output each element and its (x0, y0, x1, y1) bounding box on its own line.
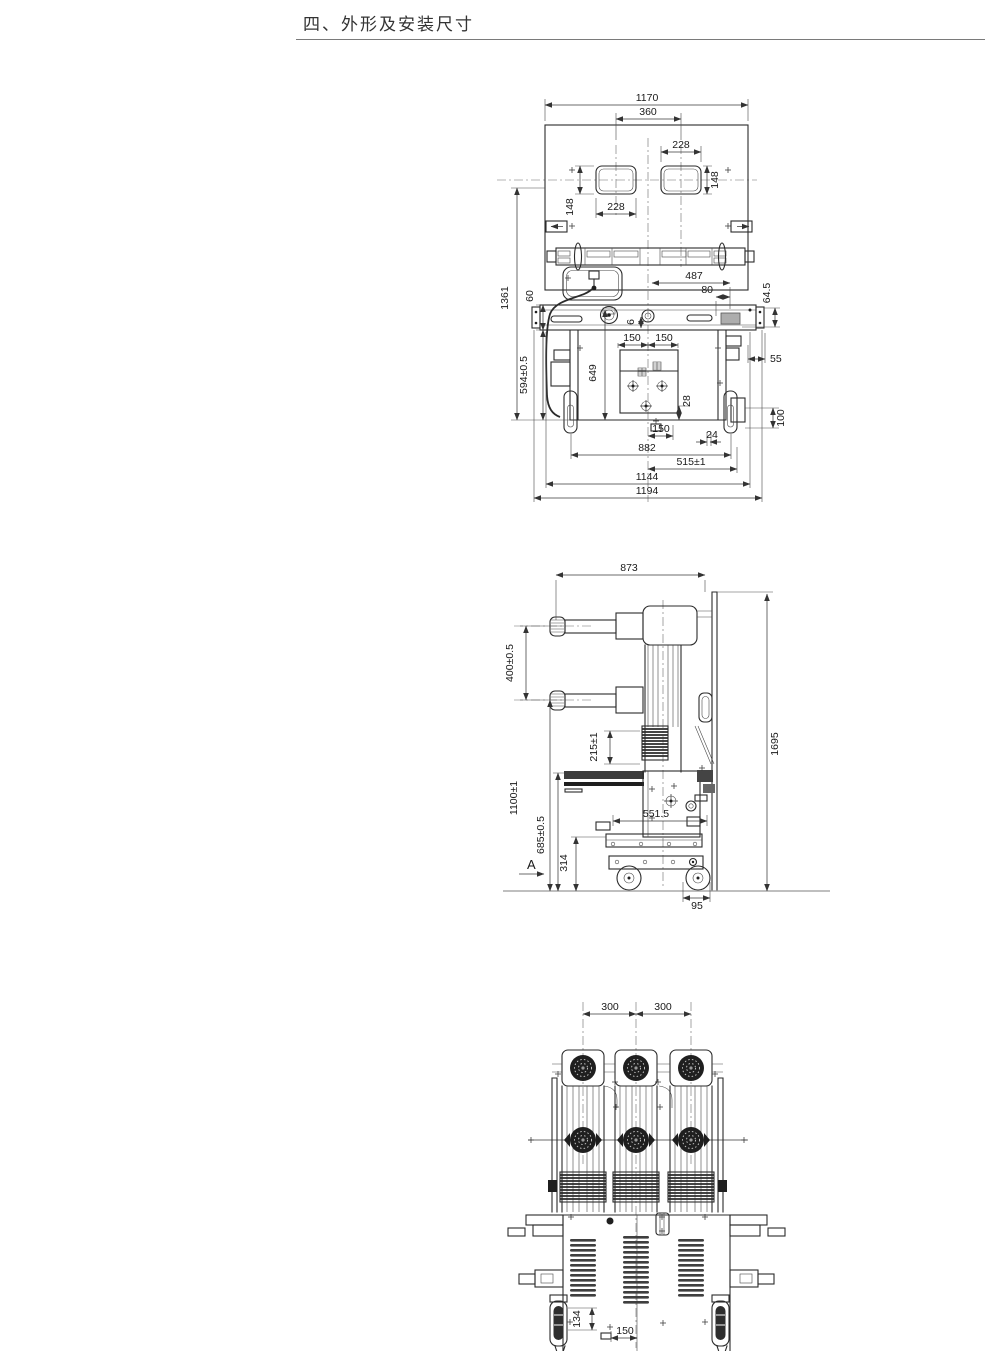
dim-label-873: 873 (620, 562, 638, 574)
side-truck (503, 834, 830, 891)
dim-label-6: 6 (625, 319, 637, 325)
dim-label-80: 80 (701, 284, 713, 296)
dim-label-1144: 1144 (636, 471, 659, 483)
side-carriage (564, 765, 715, 837)
dim-label-148-right: 148 (709, 171, 721, 189)
dim-label-134: 134 (571, 1310, 583, 1328)
dim-label-64_5: 64.5 (761, 283, 773, 304)
section-label-A: A (527, 857, 536, 872)
front-plan-dimensions: 1170 360 228 148 148 228 487 80 64.5 136… (499, 92, 787, 502)
dim-label-300-left: 300 (601, 1001, 619, 1013)
page-title: 四、外形及安装尺寸 (303, 10, 474, 35)
pole-terminals (564, 1055, 710, 1153)
dim-label-60: 60 (524, 290, 536, 302)
dim-label-228-left: 228 (607, 201, 625, 213)
dim-label-1100: 1100±1 (508, 781, 520, 815)
drawing-side-view: 873 400±0.5 215±1 1695 1100±1 551.5 685±… (495, 555, 835, 930)
dim-label-150-bottom: 150 (652, 423, 670, 435)
side-lower-arm (550, 687, 643, 713)
dim-label-148-left: 148 (564, 198, 576, 216)
dim-label-28: 28 (681, 395, 693, 407)
dim-label-314: 314 (558, 854, 570, 872)
side-rear-panel (695, 592, 773, 890)
dim-label-150-rear: 150 (616, 1325, 634, 1337)
bolt-grid-symbols (638, 362, 661, 376)
drawing-pole-view: 300 300 (500, 990, 790, 1351)
dim-label-100: 100 (775, 409, 787, 427)
side-upper-arm (550, 613, 643, 639)
dim-label-228-right: 228 (672, 139, 690, 151)
dim-label-360: 360 (639, 106, 657, 118)
dim-label-150-left: 150 (623, 332, 641, 344)
title-underline (296, 39, 985, 40)
rear-bottom-dimensions: 134 150 (567, 1308, 708, 1342)
dim-label-300-right: 300 (654, 1001, 672, 1013)
dim-label-215: 215±1 (588, 732, 600, 761)
dim-label-1170: 1170 (636, 92, 659, 104)
dim-label-400: 400±0.5 (504, 644, 516, 682)
dim-label-685: 685±0.5 (535, 816, 547, 854)
manual-page: 四、外形及安装尺寸 (0, 0, 1000, 1351)
side-pole (642, 606, 712, 772)
dim-label-515: 515±1 (676, 456, 705, 468)
front-mechanism-panel (620, 350, 678, 413)
dim-label-150-right: 150 (655, 332, 673, 344)
dim-label-1695: 1695 (769, 732, 781, 756)
phase-spacing-dimensions: 300 300 (583, 1001, 691, 1014)
dim-label-55: 55 (770, 353, 782, 365)
dim-label-551_5: 551.5 (643, 808, 669, 820)
dim-label-1361: 1361 (499, 286, 511, 310)
pole-ribbed-insulators (560, 1172, 714, 1202)
dim-label-487: 487 (685, 270, 703, 282)
drawing-front-plan-view: 1170 360 228 148 148 228 487 80 64.5 136… (490, 85, 835, 510)
dim-label-24: 24 (706, 429, 718, 441)
bolt-target-symbols (627, 380, 668, 412)
dim-label-1194: 1194 (636, 485, 659, 497)
dim-label-649: 649 (587, 364, 599, 382)
plan-direction-arrows (546, 221, 752, 232)
dim-label-594: 594±0.5 (518, 356, 530, 394)
plan-rail-assembly (547, 243, 754, 270)
dim-label-95: 95 (691, 900, 703, 912)
dim-label-882: 882 (638, 442, 656, 454)
